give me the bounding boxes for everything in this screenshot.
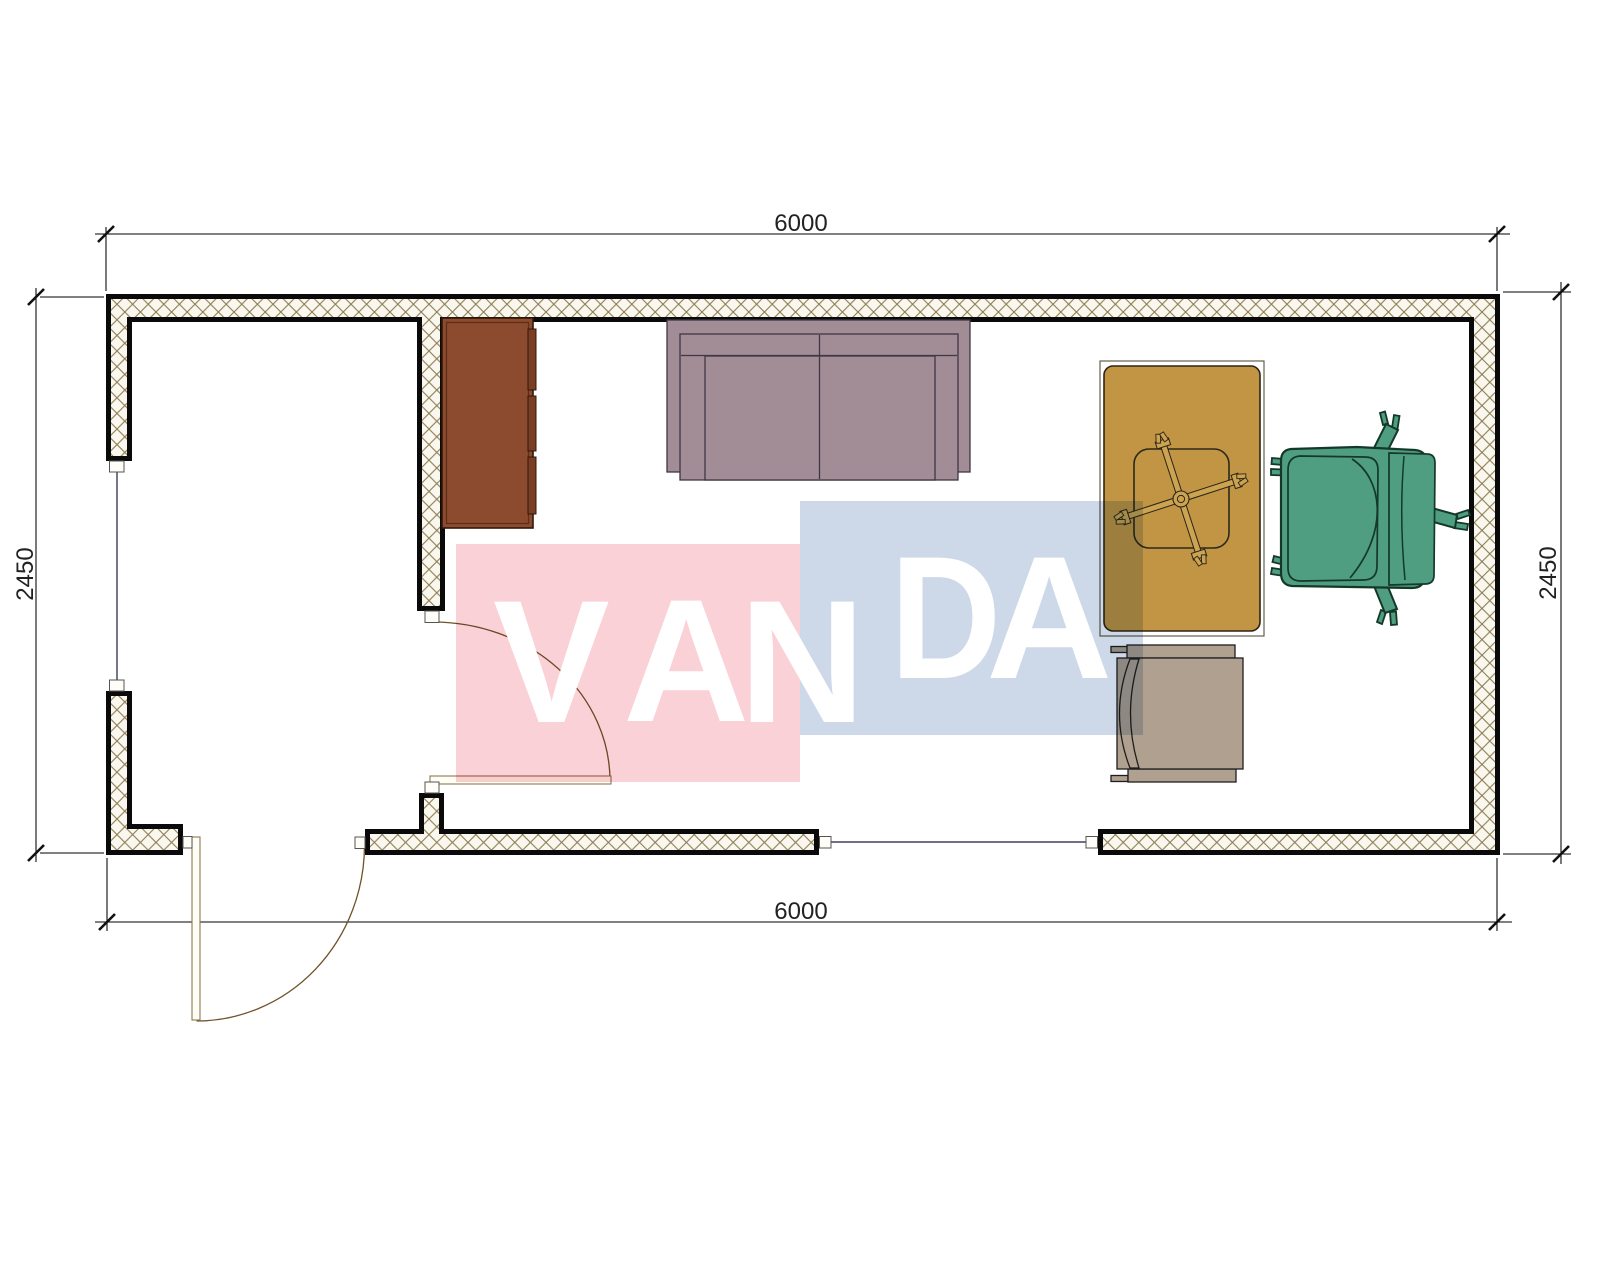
svg-text:V: V — [493, 565, 610, 760]
svg-text:6000: 6000 — [774, 210, 827, 237]
svg-text:N: N — [739, 565, 865, 760]
svg-text:A: A — [623, 564, 749, 759]
svg-text:6000: 6000 — [774, 898, 827, 925]
svg-text:A: A — [986, 521, 1112, 716]
svg-text:2450: 2450 — [1535, 546, 1562, 599]
svg-text:D: D — [890, 520, 1001, 715]
svg-text:2450: 2450 — [12, 547, 39, 600]
